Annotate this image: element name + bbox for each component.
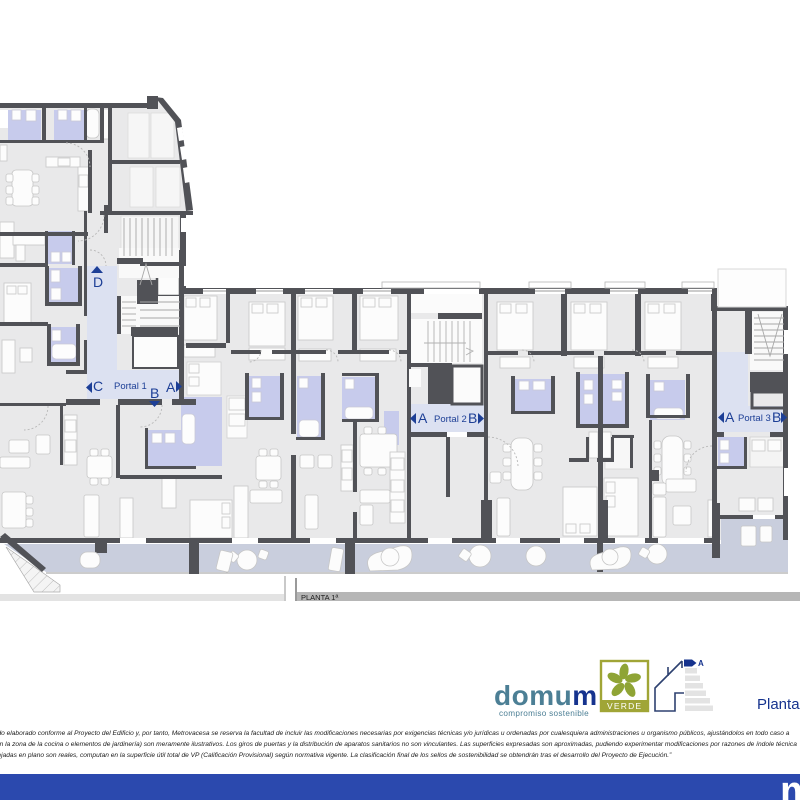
- svg-text:D: D: [93, 274, 103, 290]
- svg-text:A: A: [418, 410, 428, 426]
- svg-text:Portal 1: Portal 1: [114, 381, 147, 392]
- svg-text:Portal 2: Portal 2: [434, 414, 467, 425]
- svg-text:compromiso sostenible: compromiso sostenible: [499, 709, 589, 718]
- svg-text:C: C: [93, 378, 103, 394]
- svg-text:A: A: [698, 659, 704, 668]
- svg-text:domum: domum: [494, 680, 598, 711]
- svg-text:en la zona de la cocina o elem: en la zona de la cocina o elementos de j…: [0, 741, 797, 748]
- svg-text:m: m: [780, 769, 800, 800]
- svg-text:Planta: Planta: [757, 696, 800, 713]
- svg-text:A: A: [166, 379, 176, 395]
- svg-text:VERDE: VERDE: [607, 701, 642, 711]
- svg-text:PLANTA 1ª: PLANTA 1ª: [301, 593, 338, 602]
- svg-text:lejadas en plano son reales, c: lejadas en plano son reales, computan en…: [0, 752, 672, 759]
- svg-text:A: A: [725, 409, 735, 425]
- svg-text:B: B: [772, 409, 781, 425]
- svg-text:ido elaborado conforme al Proy: ido elaborado conforme al Proyecto del E…: [0, 730, 790, 737]
- svg-text:Portal 3: Portal 3: [738, 413, 771, 424]
- svg-text:B: B: [150, 385, 159, 401]
- svg-text:B: B: [468, 410, 477, 426]
